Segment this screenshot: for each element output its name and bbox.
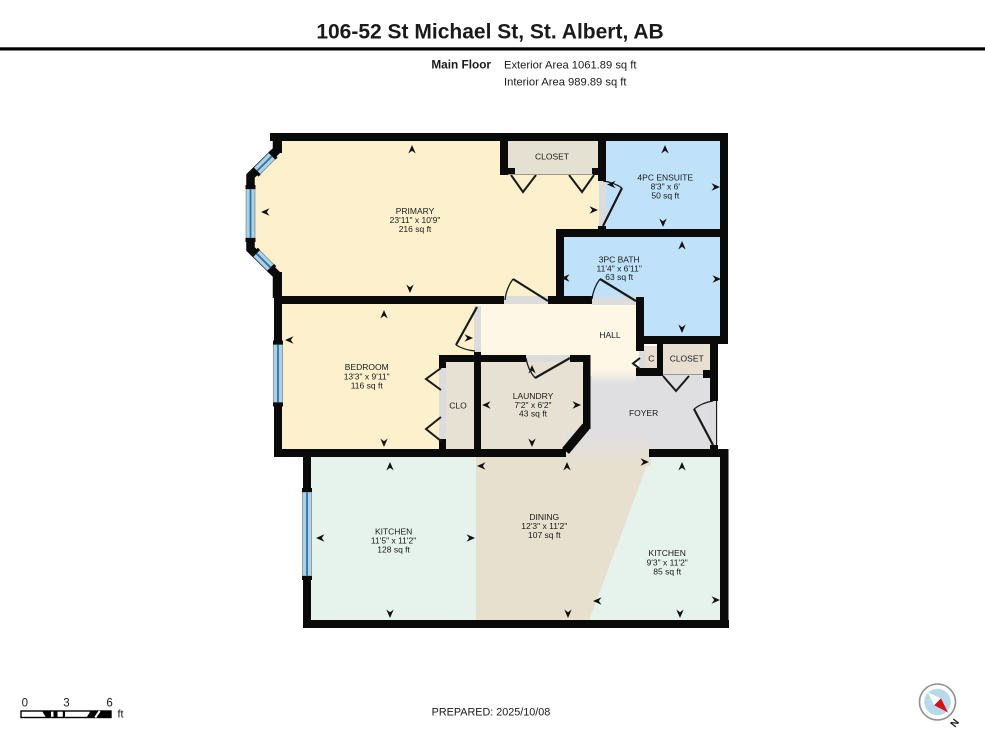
- svg-text:85 sq ft: 85 sq ft: [653, 566, 682, 576]
- svg-text:216 sq ft: 216 sq ft: [399, 224, 432, 234]
- svg-text:CLOSET: CLOSET: [535, 152, 569, 162]
- svg-text:107 sq ft: 107 sq ft: [528, 530, 561, 540]
- svg-text:Exterior Area 1061.89 sq ft: Exterior Area 1061.89 sq ft: [504, 60, 637, 72]
- svg-text:50 sq ft: 50 sq ft: [651, 190, 680, 200]
- svg-text:FOYER: FOYER: [629, 408, 658, 418]
- svg-text:43 sq ft: 43 sq ft: [519, 409, 548, 419]
- svg-text:Interior Area 989.89 sq ft: Interior Area 989.89 sq ft: [504, 77, 627, 89]
- svg-text:ft: ft: [118, 709, 124, 721]
- svg-text:116 sq ft: 116 sq ft: [351, 380, 384, 390]
- svg-text:PREPARED: 2025/10/08: PREPARED: 2025/10/08: [432, 707, 551, 719]
- svg-text:CLOSET: CLOSET: [670, 354, 704, 364]
- svg-text:C: C: [648, 354, 654, 364]
- svg-text:HALL: HALL: [599, 330, 621, 340]
- svg-text:106-52 St Michael St, St. Albe: 106-52 St Michael St, St. Albert, AB: [316, 21, 663, 44]
- svg-text:CLO: CLO: [449, 400, 467, 410]
- svg-text:63 sq ft: 63 sq ft: [605, 272, 634, 282]
- svg-text:3: 3: [63, 698, 69, 710]
- svg-text:Main Floor: Main Floor: [431, 58, 491, 72]
- svg-text:0: 0: [22, 698, 28, 710]
- svg-text:128 sq ft: 128 sq ft: [377, 545, 410, 555]
- svg-text:6: 6: [106, 698, 112, 710]
